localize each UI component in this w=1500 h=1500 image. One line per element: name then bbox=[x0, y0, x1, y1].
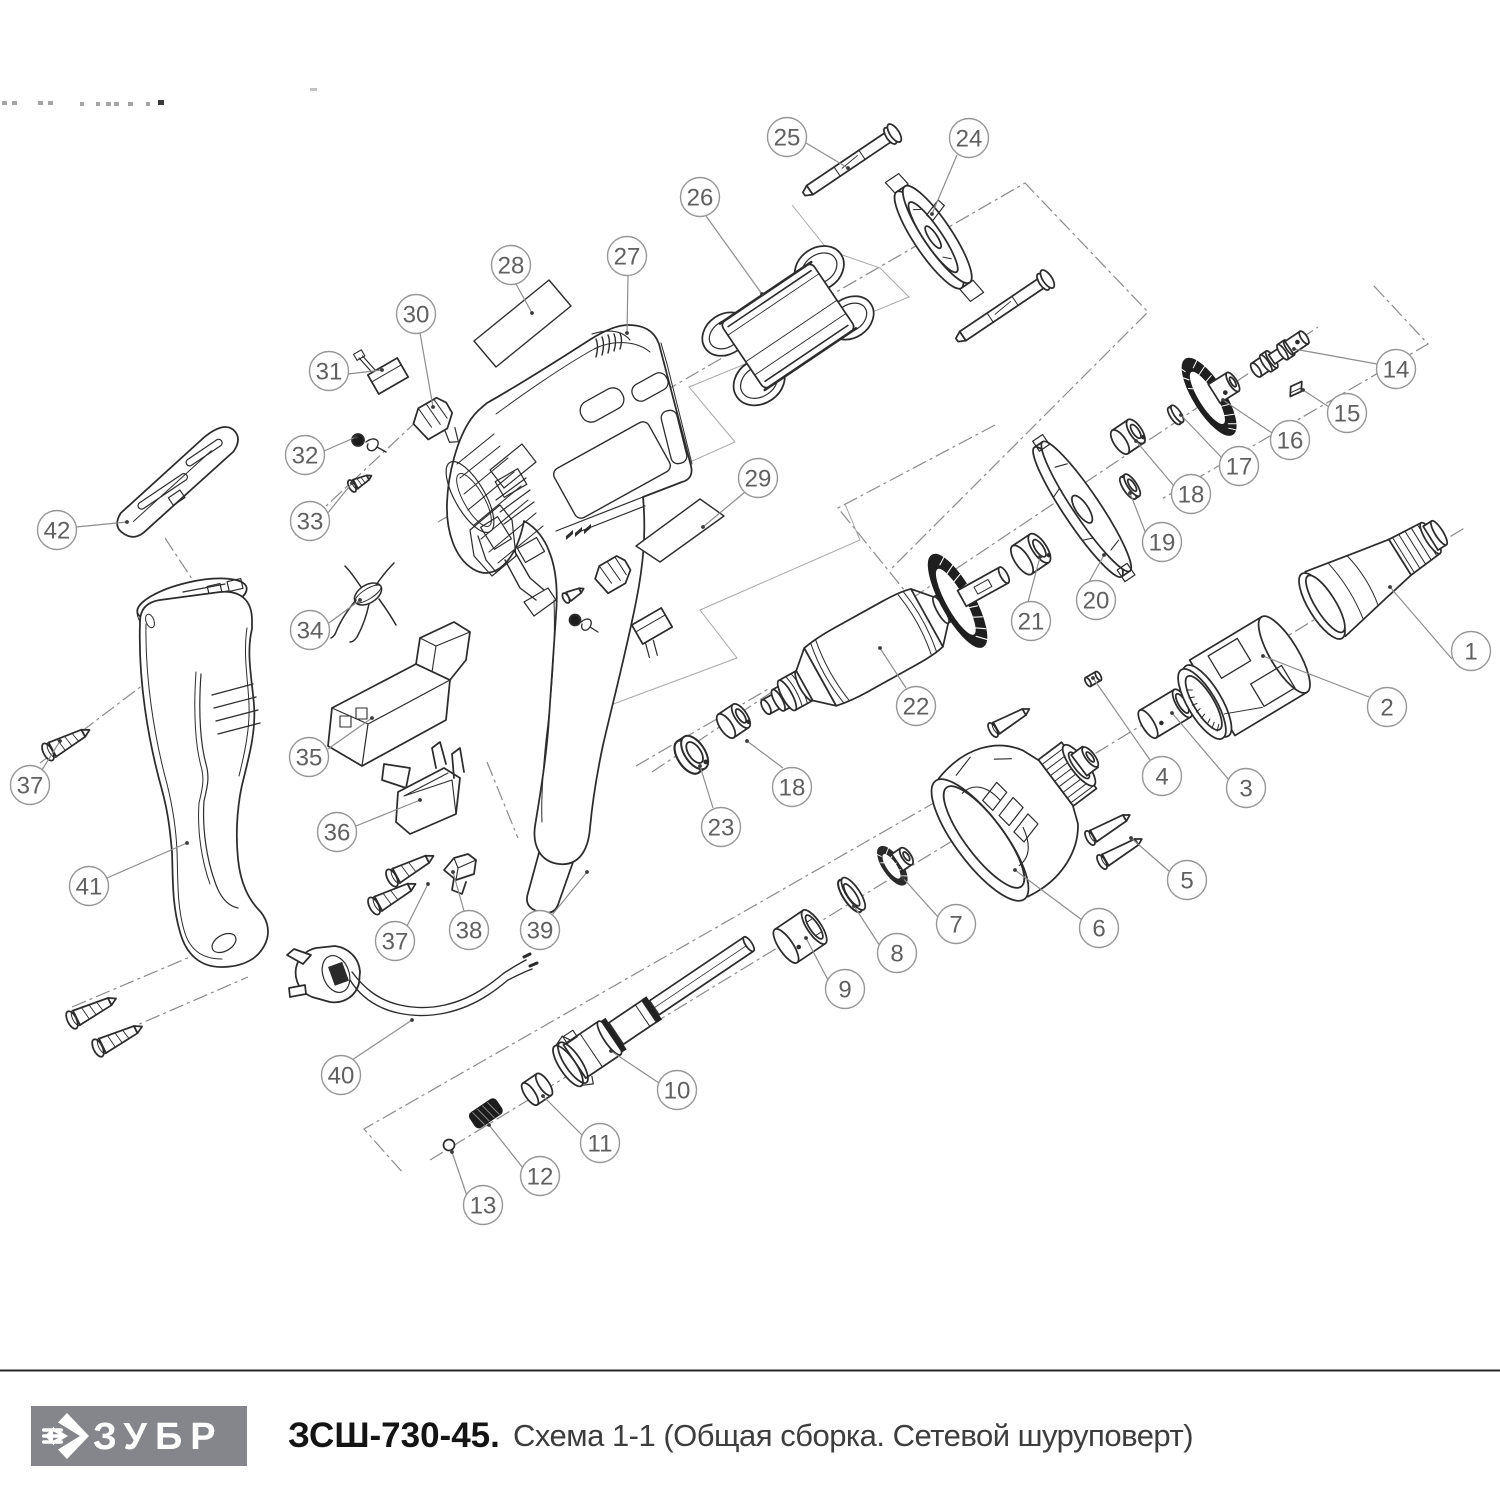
svg-text:2: 2 bbox=[1380, 695, 1393, 722]
svg-text:22: 22 bbox=[903, 694, 930, 721]
svg-text:26: 26 bbox=[687, 185, 714, 212]
svg-text:42: 42 bbox=[44, 518, 71, 545]
svg-text:39: 39 bbox=[527, 918, 554, 945]
svg-text:3: 3 bbox=[1239, 776, 1252, 803]
svg-text:31: 31 bbox=[316, 359, 343, 386]
svg-text:40: 40 bbox=[328, 1063, 355, 1090]
svg-text:1: 1 bbox=[1464, 639, 1477, 666]
svg-text:27: 27 bbox=[614, 244, 641, 271]
svg-text:8: 8 bbox=[890, 941, 903, 968]
svg-text:19: 19 bbox=[1149, 530, 1176, 557]
svg-text:12: 12 bbox=[527, 1164, 554, 1191]
svg-text:25: 25 bbox=[774, 125, 801, 152]
svg-text:10: 10 bbox=[664, 1078, 691, 1105]
svg-text:30: 30 bbox=[403, 302, 430, 329]
svg-text:9: 9 bbox=[838, 977, 851, 1004]
svg-text:33: 33 bbox=[297, 509, 324, 536]
svg-text:21: 21 bbox=[1018, 609, 1045, 636]
svg-text:11: 11 bbox=[588, 1131, 613, 1158]
svg-text:6: 6 bbox=[1092, 916, 1105, 943]
svg-text:18: 18 bbox=[1178, 482, 1205, 509]
svg-text:41: 41 bbox=[76, 874, 103, 901]
svg-text:14: 14 bbox=[1383, 357, 1410, 384]
svg-text:36: 36 bbox=[324, 820, 351, 847]
svg-text:4: 4 bbox=[1155, 764, 1168, 791]
svg-text:37: 37 bbox=[382, 929, 409, 956]
svg-text:7: 7 bbox=[949, 912, 962, 939]
svg-text:38: 38 bbox=[456, 918, 483, 945]
svg-text:18: 18 bbox=[779, 775, 806, 802]
svg-text:16: 16 bbox=[1277, 428, 1304, 455]
svg-text:28: 28 bbox=[498, 253, 525, 280]
svg-text:29: 29 bbox=[745, 466, 772, 493]
svg-text:ЗСШ-730-45.: ЗСШ-730-45. bbox=[288, 1416, 500, 1455]
svg-text:17: 17 bbox=[1226, 454, 1253, 481]
svg-text:23: 23 bbox=[708, 815, 735, 842]
svg-text:Схема 1-1 (Общая сборка. Сетев: Схема 1-1 (Общая сборка. Сетевой шурупов… bbox=[513, 1418, 1193, 1453]
svg-text:5: 5 bbox=[1180, 868, 1193, 895]
svg-text:35: 35 bbox=[296, 745, 323, 772]
svg-text:32: 32 bbox=[292, 443, 319, 470]
svg-text:34: 34 bbox=[297, 618, 324, 645]
svg-text:20: 20 bbox=[1083, 588, 1110, 615]
svg-text:24: 24 bbox=[956, 126, 983, 153]
svg-text:15: 15 bbox=[1334, 401, 1361, 428]
svg-text:37: 37 bbox=[17, 773, 44, 800]
svg-text:13: 13 bbox=[470, 1193, 497, 1220]
svg-text:ЗУБР: ЗУБР bbox=[93, 1416, 224, 1458]
